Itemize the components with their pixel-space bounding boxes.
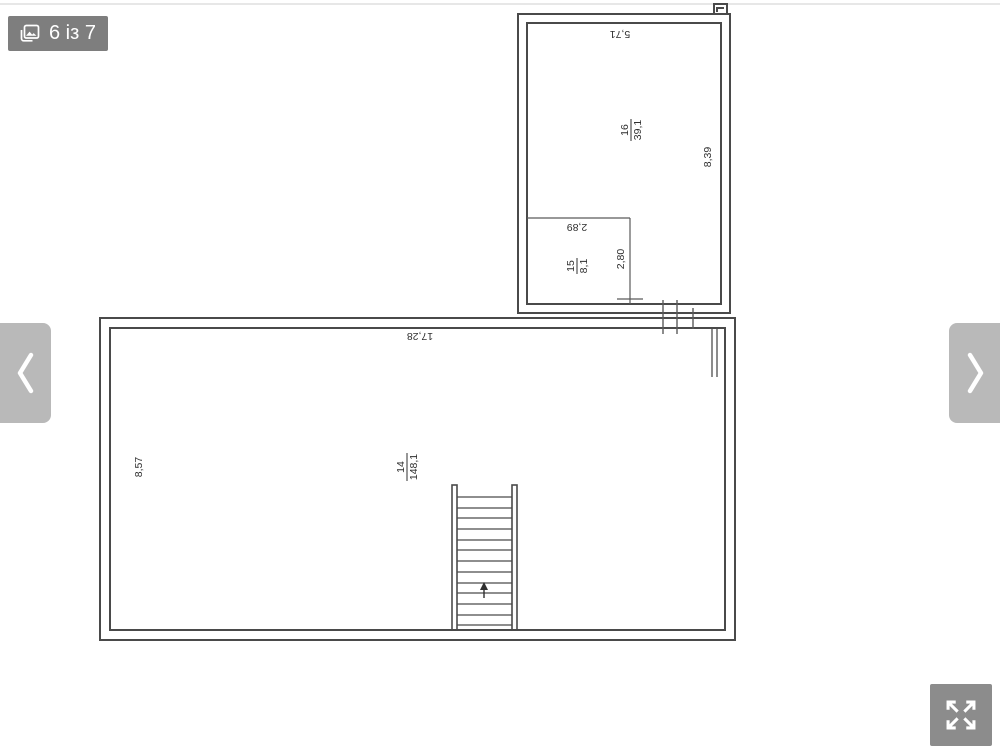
svg-text:39,1: 39,1 (632, 120, 644, 141)
photo-counter-badge: 6 із 7 (8, 16, 108, 51)
fullscreen-button[interactable] (930, 684, 992, 746)
svg-text:8,1: 8,1 (578, 259, 590, 274)
chevron-right-icon (960, 347, 990, 399)
dim-room14-height: 8,57 (133, 457, 145, 478)
room-label-14: 14 148,1 (395, 453, 420, 481)
floor-plan-image: 5,71 8,39 2,89 2,80 17,28 8,57 16 39,1 1… (0, 0, 1000, 749)
room-label-16: 16 39,1 (619, 119, 644, 141)
staircase (452, 485, 517, 630)
image-viewer: 5,71 8,39 2,89 2,80 17,28 8,57 16 39,1 1… (0, 0, 1000, 749)
svg-text:148,1: 148,1 (408, 454, 420, 480)
next-image-button[interactable] (949, 323, 1000, 423)
gallery-image-icon (17, 22, 41, 46)
room-label-15: 15 8,1 (565, 258, 590, 274)
dim-room15-width: 2,89 (567, 221, 588, 233)
expand-arrows-icon (938, 692, 984, 738)
dim-room16-height: 8,39 (702, 147, 714, 168)
svg-text:15: 15 (565, 260, 577, 272)
dim-room16-width: 5,71 (610, 28, 631, 40)
prev-image-button[interactable] (0, 323, 51, 423)
stair-direction-arrow (480, 582, 488, 598)
chevron-left-icon (11, 347, 41, 399)
svg-text:16: 16 (619, 124, 631, 136)
section-opening-ticks (663, 300, 717, 377)
svg-text:14: 14 (395, 461, 407, 473)
dim-room15-height: 2,80 (615, 249, 627, 270)
dim-room14-width: 17,28 (407, 330, 433, 342)
photo-counter-text: 6 із 7 (49, 16, 96, 51)
